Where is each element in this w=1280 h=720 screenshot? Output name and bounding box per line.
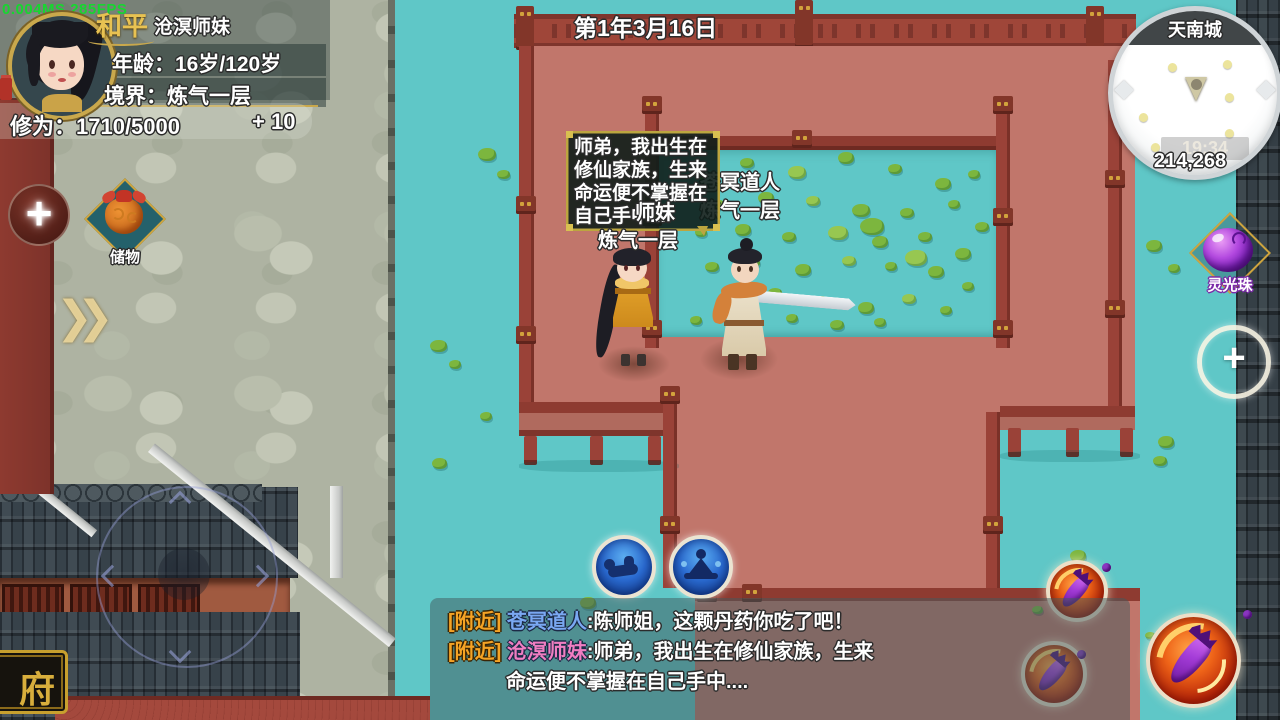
cultivation-gain: + 10: [252, 109, 295, 135]
rail-post: [993, 96, 1013, 114]
lily-pad: [478, 148, 496, 161]
building-plaque: 府: [0, 650, 68, 714]
fence-post: [516, 6, 534, 50]
rail-post: [993, 208, 1013, 226]
lily-pad: [497, 170, 510, 179]
rest-icon-head: [604, 559, 615, 570]
platform-shadow: [1000, 450, 1140, 462]
npc-topknot: [740, 238, 753, 251]
rest-skill-button[interactable]: [592, 535, 656, 599]
bag-swirl: [127, 212, 138, 223]
rail-post: [660, 516, 680, 534]
add-button-left[interactable]: +: [8, 184, 70, 246]
lily-pad: [852, 204, 870, 217]
avatar-eye: [49, 60, 55, 69]
meditate-glow: [681, 561, 687, 567]
lily-pad: [940, 306, 952, 315]
rail-post: [983, 516, 1003, 534]
avatar-blush: [68, 72, 76, 77]
stone-path-edge: [388, 0, 395, 720]
lily-pad: [788, 166, 806, 179]
chat-channel: [附近]: [448, 641, 501, 663]
meditate-glow: [715, 561, 721, 567]
minimap-dot: [1139, 113, 1148, 122]
lily-pad: [968, 170, 980, 179]
minimap-right-arrow-icon: [1256, 80, 1276, 100]
lily-pad: [432, 458, 447, 469]
speech-bubble-tail: [697, 226, 708, 236]
extension-right-railing: [986, 412, 1000, 588]
lily-pad: [806, 196, 820, 206]
minimap-left-arrow-icon: [1114, 80, 1134, 100]
lily-pad: [928, 266, 944, 278]
chat-channel: [附近]: [448, 611, 501, 633]
rail-post: [516, 326, 536, 344]
rail-post: [516, 196, 536, 214]
meditate-skill-button[interactable]: [669, 535, 733, 599]
name-flourish: [88, 36, 154, 46]
lily-pad: [902, 294, 916, 304]
avatar-sidelock: [28, 34, 40, 86]
player-foot: [621, 354, 630, 366]
chat-sender[interactable]: 苍冥道人: [507, 611, 587, 633]
rail-post: [660, 386, 680, 404]
player-position-icon-core: [1191, 79, 1202, 90]
player-foot: [637, 354, 646, 366]
lily-pad: [735, 224, 751, 236]
chat-sender[interactable]: 沧溟师妹: [507, 641, 587, 663]
npc-eye: [737, 266, 741, 272]
add-button-right[interactable]: +: [1197, 325, 1271, 399]
avatar-mouth: [58, 78, 66, 82]
left-wing-railing: [519, 402, 677, 413]
game-date: 第1年3月16日: [574, 9, 717, 43]
lily-pad: [430, 340, 447, 352]
joystick-knob[interactable]: [158, 548, 210, 600]
npc-boot: [728, 354, 739, 370]
eaves-band: [55, 696, 430, 720]
bubble-line: 师弟，我出生在: [574, 136, 712, 159]
orb-item-label: 灵光珠: [1204, 274, 1256, 295]
rest-icon-knee: [624, 556, 634, 568]
avatar-blush: [48, 72, 56, 77]
player-eye: [624, 265, 628, 271]
lily-pad: [858, 302, 874, 314]
npc-belt: [724, 320, 764, 326]
game-screen: 苍冥道人 炼气一层 师弟，我出生在 修仙家族，生来 命运便不掌握在 自己手中..…: [0, 0, 1280, 720]
purple-orb-icon: [1203, 228, 1253, 272]
avatar-bangs: [32, 22, 88, 48]
npc-character[interactable]: [700, 236, 860, 380]
lily-pad: [905, 250, 927, 266]
player-realm-label: 炼气一层: [598, 224, 678, 253]
storage-item-slot[interactable]: 储物: [92, 186, 156, 270]
chat-text: :师弟，我出生在修仙家族，生来: [587, 641, 874, 663]
minimap-dot: [1223, 60, 1232, 69]
left-wing-edge: [519, 413, 677, 430]
player-title: 沧溟师妹: [154, 12, 230, 39]
lily-pad: [918, 232, 932, 242]
bag-swirl: [112, 208, 124, 220]
avatar-eye: [69, 60, 75, 69]
lily-pad: [948, 200, 960, 209]
rail-post: [993, 320, 1013, 338]
minimap-dot: [1225, 93, 1234, 102]
plaque-character: 府: [19, 661, 55, 713]
chat-panel[interactable]: [附近] 苍冥道人:陈师姐，这颗丹药你吃了吧！ [附近] 沧溟师妹:师弟，我出生…: [430, 598, 1130, 720]
player-eye: [636, 265, 640, 271]
lily-pad: [962, 282, 974, 291]
lily-pad: [885, 262, 897, 271]
rail-post: [642, 96, 662, 114]
chat-text: 命运便不掌握在自己手中....: [506, 671, 748, 693]
lily-pad: [860, 218, 884, 235]
lily-pad: [955, 248, 971, 260]
lily-pad: [1158, 436, 1174, 448]
platform-shadow: [519, 460, 679, 472]
right-wing-railing: [1000, 406, 1135, 417]
expand-chevron[interactable]: ❯❯: [56, 292, 98, 343]
rail-post: [1105, 300, 1125, 318]
lily-pad: [1168, 264, 1180, 273]
lily-pad: [888, 164, 902, 174]
currency-amount: 214,268: [1108, 150, 1272, 173]
orb-swirl: [1232, 232, 1246, 246]
left-wall-railing: [519, 46, 534, 412]
meditate-icon-legs: [684, 573, 718, 579]
lily-pad: [874, 318, 886, 327]
minimap-dot: [1168, 63, 1177, 72]
storage-bag-knot: [116, 190, 132, 202]
skill-bead: [1102, 563, 1111, 572]
npc-sword: [751, 290, 856, 311]
portrait-tassel: [0, 78, 12, 100]
meditate-icon-head: [696, 549, 706, 559]
lily-pad: [480, 412, 492, 421]
npc-boot: [746, 354, 757, 370]
lily-pad: [900, 208, 914, 218]
player-name-label: 师妹: [635, 196, 675, 225]
attack-skill-button-large[interactable]: [1146, 613, 1241, 708]
minimap-location: 天南城: [1113, 16, 1277, 42]
chat-text: :陈师姐，这颗丹药你吃了吧！: [587, 611, 854, 633]
lily-pad: [872, 236, 888, 248]
player-character[interactable]: [596, 248, 676, 378]
bubble-line: 修仙家族，生来: [574, 159, 712, 182]
lily-pad: [1153, 456, 1167, 466]
skill-bead: [1243, 610, 1252, 619]
npc-eye: [749, 266, 753, 272]
player-realm: 境界：炼气一层: [104, 80, 251, 110]
player-age: 年龄：16岁/120岁: [112, 48, 281, 78]
lily-pad: [935, 178, 951, 190]
lily-pad: [838, 152, 854, 164]
lily-pad: [975, 222, 989, 232]
cultivation-value: 修为：1710/5000: [10, 109, 180, 141]
lily-pad: [1146, 240, 1162, 252]
rail-post: [792, 130, 812, 148]
fence-post: [795, 0, 813, 48]
lily-pad: [449, 360, 461, 369]
fence-post: [1086, 6, 1104, 50]
roof-beam: [330, 486, 343, 578]
storage-item-label: 储物: [100, 246, 150, 267]
orb-item-slot[interactable]: 灵光珠: [1194, 218, 1264, 298]
left-side-panel: [0, 98, 54, 494]
